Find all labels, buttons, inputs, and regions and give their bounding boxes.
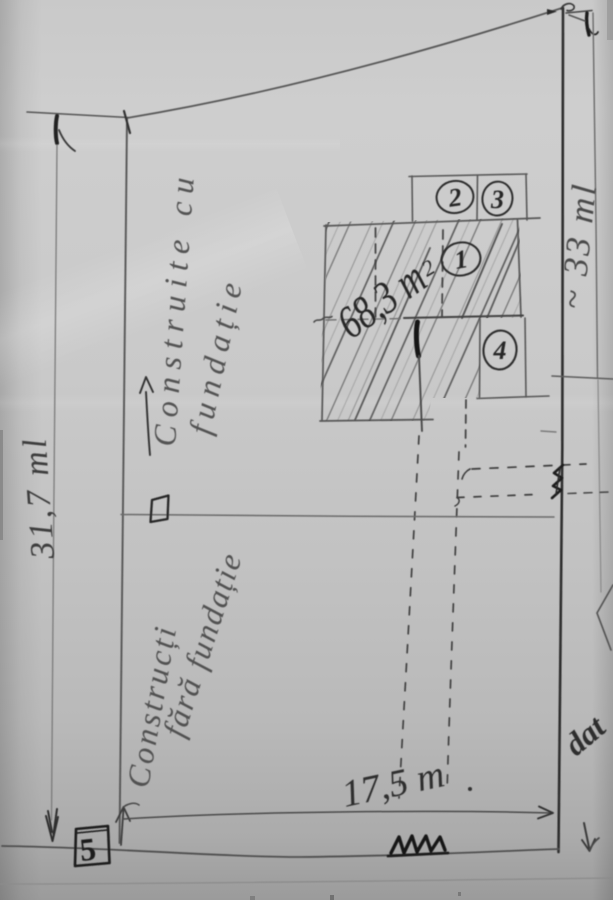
svg-text:4: 4: [493, 336, 507, 365]
svg-text:3: 3: [490, 185, 504, 214]
